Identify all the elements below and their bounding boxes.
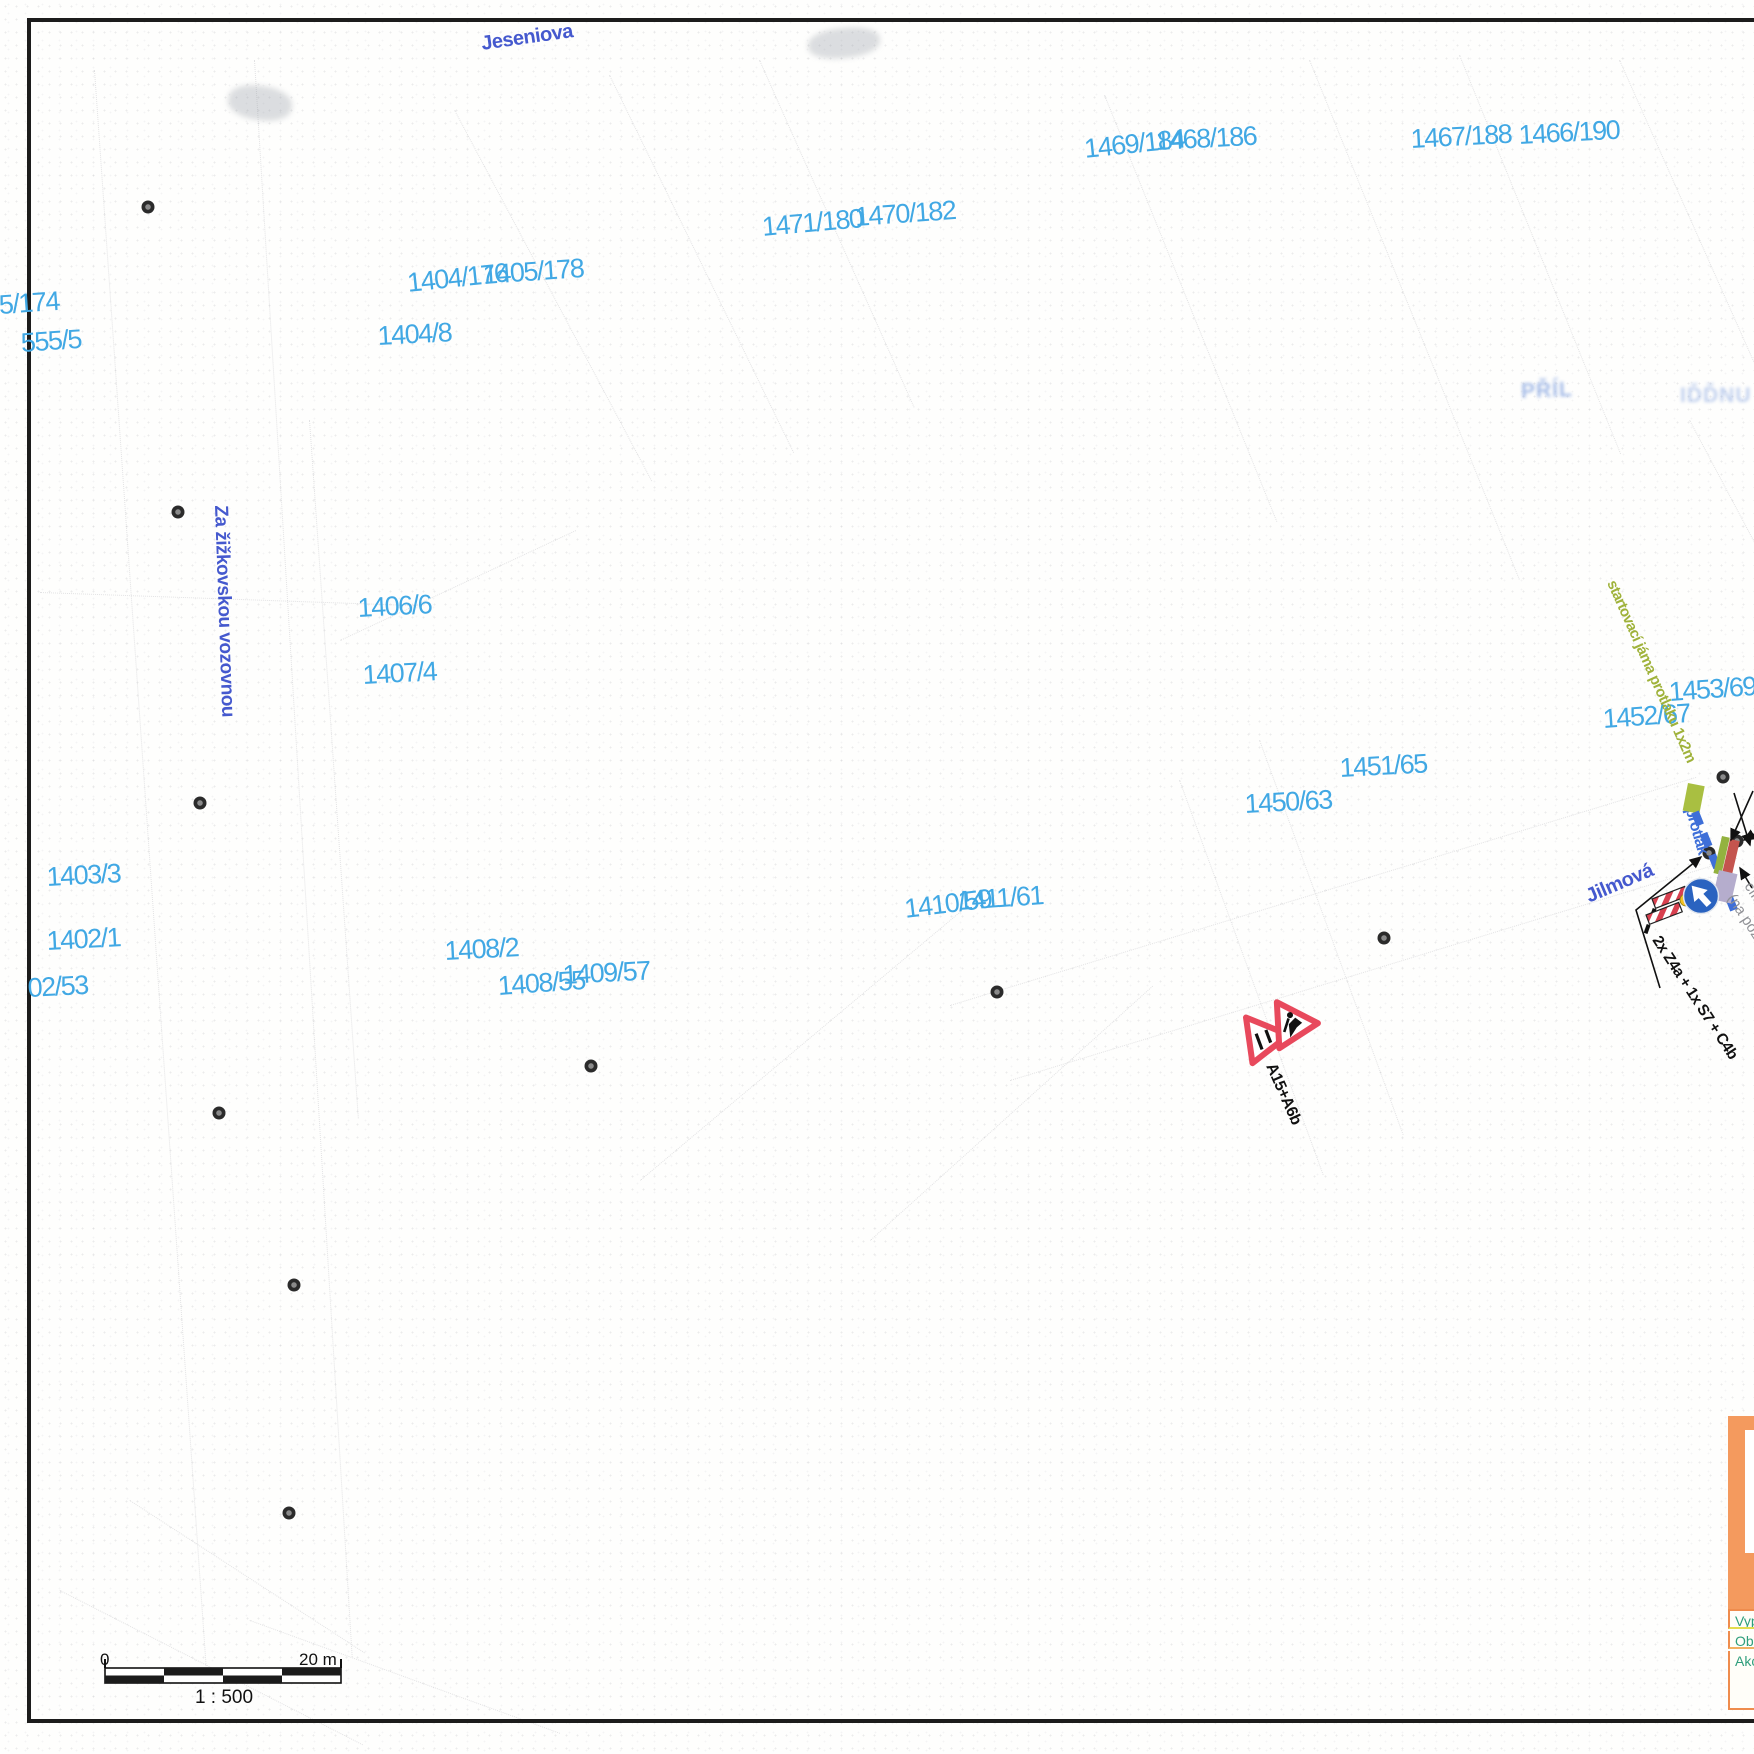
faint-cadastral-line xyxy=(309,420,359,1118)
parcel-label: 1470/182 xyxy=(854,197,956,231)
parcel-label: 5/174 xyxy=(0,288,60,319)
survey-point-dot xyxy=(288,1279,301,1292)
street-name-label: Jilmová xyxy=(1583,860,1656,906)
faint-cadastral-line xyxy=(454,110,652,481)
warning-signs-label: A15+A6b xyxy=(1262,1061,1304,1128)
scale-bar: 0 20 m 1 : 500 xyxy=(100,1650,341,1708)
titleblock-row-vypracoval: Vyp xyxy=(1728,1609,1754,1629)
parcel-label: 1407/4 xyxy=(362,658,437,689)
faint-cadastral-line xyxy=(609,75,794,453)
parcel-label: 1409/57 xyxy=(562,957,650,989)
parcel-label: 1450/63 xyxy=(1244,786,1332,818)
z4a-bar-icon xyxy=(1645,886,1690,917)
parcel-label: 1403/3 xyxy=(46,860,121,891)
parcel-label: 1405/178 xyxy=(482,255,584,289)
parcel-label: 02/53 xyxy=(27,972,88,1002)
titleblock-row-objednatel: Obj xyxy=(1728,1631,1754,1649)
survey-point-dot xyxy=(1717,771,1730,784)
survey-point-dot xyxy=(1378,932,1391,945)
survey-point-dot xyxy=(213,1107,226,1120)
signs-group-label: 2x Z4a + 1x S7 + C4b xyxy=(1649,933,1741,1063)
survey-point-dot xyxy=(991,986,1004,999)
scan-speckle-texture xyxy=(0,0,1754,1754)
parcel-label: 1468/186 xyxy=(1155,123,1257,155)
street-name-label: Jeseniova xyxy=(480,21,574,54)
street-name-label: Za žižkovskou vozovnou xyxy=(211,505,237,717)
parcel-label: 555/5 xyxy=(20,326,82,357)
parcel-label: 1471/180 xyxy=(761,205,864,241)
map-frame-bottom xyxy=(27,1719,1754,1723)
parcel-label: 1408/2 xyxy=(444,934,519,965)
dimension-arrow xyxy=(1731,791,1753,840)
faint-cadastral-line xyxy=(340,530,576,641)
faint-bleedthrough-text: PŘÍL xyxy=(1521,379,1574,402)
startovaci-jama-label: startovací jáma protlaku 1x2m xyxy=(1604,578,1698,765)
survey-point-dot xyxy=(142,201,155,214)
scale-bar-max-label: 20 m xyxy=(299,1650,337,1669)
faint-cadastral-line xyxy=(1179,780,1324,1175)
survey-point-dot xyxy=(283,1507,296,1520)
scan-smudge xyxy=(807,24,882,61)
cilova-jama-label-line2: (na pozemku xyxy=(1724,891,1754,973)
scale-bar-zero-label: 0 xyxy=(100,1650,109,1669)
scan-smudge xyxy=(226,82,294,125)
vector-overlay: 2x Z4a + 1x S7 + C4b A15+A6b cílová jáma… xyxy=(0,0,1754,1754)
map-frame-left xyxy=(27,18,31,1723)
faint-cadastral-line xyxy=(254,60,353,1657)
titleblock-row-akce: Akc xyxy=(1728,1651,1754,1710)
map-frame-top xyxy=(27,18,1754,22)
s7-beacon-icon xyxy=(1680,894,1692,906)
parcel-label: 1451/65 xyxy=(1339,750,1427,782)
parcel-label: 1411/61 xyxy=(957,882,1044,915)
faint-cadastral-line xyxy=(1689,420,1754,712)
scanned-map-sheet: { "document_type": "traffic-engineering … xyxy=(0,0,1754,1754)
parcel-label: 1406/6 xyxy=(357,591,432,622)
c4b-sign-icon xyxy=(1684,879,1719,914)
parcel-label: 1466/190 xyxy=(1518,117,1620,149)
parcel-label: 1404/8 xyxy=(377,319,452,350)
scale-ratio-label: 1 : 500 xyxy=(195,1687,253,1708)
z4a-bar-icon xyxy=(1639,902,1684,933)
titleblock-inner-box xyxy=(1745,1430,1754,1553)
survey-point-dot xyxy=(1731,835,1744,848)
faint-cadastral-line xyxy=(250,1620,560,1734)
faint-bleedthrough-text: IĎĎNU xyxy=(1680,385,1752,406)
survey-point-dot xyxy=(585,1060,598,1073)
faint-cadastral-line xyxy=(640,910,962,1181)
survey-point-dot xyxy=(172,506,185,519)
faint-cadastral-line xyxy=(1619,60,1754,408)
survey-point-dot xyxy=(194,797,207,810)
cilova-jama-label-line1: cílová jáma xyxy=(1741,879,1754,952)
parcel-label: 1402/1 xyxy=(46,924,121,955)
parcel-label: 1453/69 xyxy=(1668,673,1754,706)
protlak-label: protlak xyxy=(1682,806,1711,856)
faint-cadastral-line xyxy=(129,1500,364,1653)
parcel-label: 1467/188 xyxy=(1410,121,1512,153)
faint-cadastral-line xyxy=(870,986,1153,1241)
